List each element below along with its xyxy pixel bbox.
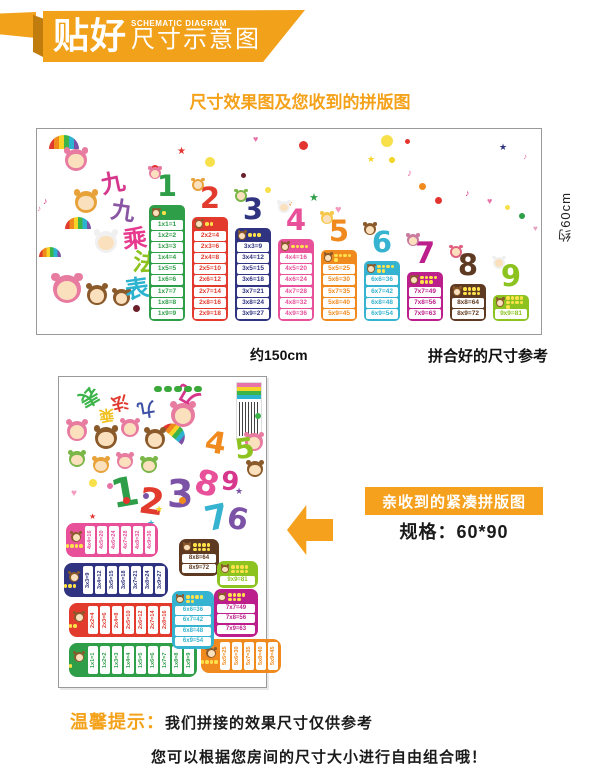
dot-icon — [202, 548, 206, 552]
multiplication-cell: 3x6=18 — [237, 275, 269, 285]
multiplication-cell: 1x5=5 — [151, 264, 183, 274]
compact-number: 5 — [233, 434, 256, 464]
note-icon: ♪ — [523, 153, 527, 161]
monkey-face-icon — [496, 298, 504, 307]
monkey-face-inner — [184, 545, 190, 550]
multiplication-cell: 7x8=56 — [217, 614, 255, 623]
multiplication-cell: 5x6=30 — [323, 275, 355, 285]
multiplication-cell: 1x4=4 — [151, 253, 183, 263]
dot-icon — [207, 548, 211, 552]
cell-text: 4x9=36 — [145, 526, 155, 554]
cell-text: 2x7=14 — [148, 606, 158, 634]
cell-text: 3x3=9 — [83, 566, 93, 594]
barcode-color-strip — [237, 383, 261, 399]
box-header — [182, 542, 216, 552]
cell-text: 3x8=24 — [143, 566, 153, 594]
column-number-row: 2 — [192, 179, 228, 217]
dot-icon — [68, 584, 72, 588]
monkey-face-inner — [222, 567, 228, 572]
dot-icon — [391, 265, 395, 269]
monkey-face-inner — [71, 574, 78, 581]
monkey-face-icon — [195, 220, 203, 229]
dot-icon — [420, 276, 424, 280]
multiplication-cell: 3x5=15 — [237, 264, 269, 274]
dot-icon — [205, 157, 215, 167]
compact-box: 6x6=366x7=426x8=486x9=54 — [172, 591, 214, 649]
cell-text: 1x5=5 — [136, 646, 146, 674]
box-header — [220, 564, 255, 574]
dots-icon — [231, 565, 252, 573]
cell-text: 1x4=4 — [124, 646, 134, 674]
multiplication-cell: 4x5=20 — [280, 264, 312, 274]
product-detail-page: 贴好 SCHEMATIC DIAGRAM 尺寸示意图 尺寸效果图及您收到的拼版图… — [0, 0, 600, 781]
multiplication-cell: 5x9=45 — [268, 642, 278, 670]
cell-text: 5x9=45 — [268, 642, 278, 670]
multiplication-cell: 3x7=21 — [131, 566, 141, 594]
multiplication-cell: 1x6=6 — [151, 275, 183, 285]
dot-icon — [343, 254, 347, 258]
column-box: 5x5=255x6=305x7=355x8=405x9=45 — [321, 250, 357, 321]
column-box-header — [194, 219, 226, 230]
multiplication-cell: 1x1=1 — [88, 646, 98, 674]
dot-icon — [339, 254, 343, 258]
brand-pill-icon — [164, 386, 172, 392]
multiplication-cell: 9x9=81 — [495, 309, 527, 319]
column-box: 2x2=42x3=62x4=82x5=102x6=122x7=142x8=162… — [192, 217, 228, 322]
monkey-face-inner — [368, 266, 374, 272]
dot-icon — [242, 593, 246, 597]
multiplication-cell: 4x4=16 — [280, 253, 312, 263]
multiplication-cell: 4x9=36 — [145, 526, 155, 554]
dot-icon — [70, 544, 74, 548]
dot-icon — [334, 254, 338, 258]
compact-box: 9x9=81 — [217, 561, 258, 588]
header-ribbon: 贴好 SCHEMATIC DIAGRAM 尺寸示意图 — [0, 4, 320, 66]
monkey-face-inner — [73, 534, 80, 541]
column-number-row: 7 — [407, 234, 443, 272]
multiplication-cell: 1x4=4 — [124, 646, 134, 674]
dot-icon — [231, 565, 235, 569]
dot-icon — [334, 258, 338, 262]
dot-icon — [237, 593, 241, 597]
monkey-face-icon — [171, 403, 195, 427]
multiplication-cell: 6x7=42 — [175, 616, 211, 625]
ribbon-banner: 贴好 SCHEMATIC DIAGRAM 尺寸示意图 — [43, 10, 305, 62]
dot-icon — [205, 660, 209, 664]
multiplication-columns: 11x1=11x2=21x3=31x4=41x5=51x6=61x7=71x8=… — [149, 167, 529, 321]
note-icon: ♪ — [43, 197, 48, 206]
multiplication-cell: 2x4=8 — [194, 253, 226, 263]
monkey-face-inner — [366, 226, 374, 234]
monkey-face-icon — [67, 421, 87, 441]
monkey-face-icon — [493, 257, 505, 269]
dot-icon — [75, 544, 79, 548]
brand-pill-icon — [194, 386, 202, 392]
multiplication-cell: 3x8=24 — [237, 298, 269, 308]
ribbon-title: 贴好 — [53, 18, 127, 54]
multiplication-cell: 3x3=9 — [237, 242, 269, 252]
monkey-face-inner — [454, 289, 460, 295]
monkey-face-inner — [282, 244, 288, 250]
monkey-face-inner — [280, 204, 288, 212]
column-box-header — [452, 286, 484, 297]
monkey-face-inner — [124, 423, 137, 435]
multiplication-cell: 2x5=10 — [124, 606, 134, 634]
multiplication-column: 11x1=11x2=21x3=31x4=41x5=51x6=61x7=71x8=… — [149, 167, 185, 321]
compact-callout-label: 亲收到的紧凑拼版图 — [365, 487, 543, 515]
multiplication-cell: 7x9=63 — [409, 309, 441, 319]
height-dimension-label: 约60cm — [556, 192, 575, 242]
dot-icon — [300, 245, 304, 249]
dot-icon — [377, 265, 381, 269]
cell-text: 3x4=12 — [95, 566, 105, 594]
monkey-face-inner — [409, 237, 417, 245]
dot-icon — [463, 292, 467, 296]
monkey-face-inner — [76, 654, 83, 661]
brand-pill-icon — [184, 386, 192, 392]
monkey-face-inner — [325, 255, 331, 261]
multiplication-cell: 3x8=24 — [143, 566, 153, 594]
dot-icon — [405, 139, 410, 144]
dot-icon — [240, 570, 244, 574]
column-box: 9x9=81 — [493, 295, 529, 321]
multiplication-cell: 6x9=54 — [366, 309, 398, 319]
dot-icon — [186, 600, 190, 604]
column-number-row: 1 — [149, 167, 185, 205]
tips-line2: 您可以根据您房间的尺寸大小进行自由组合哦！ — [151, 746, 540, 767]
multiplication-cell: 2x8=16 — [194, 298, 226, 308]
cell-text: 1x9=9 — [184, 646, 194, 674]
brand-pill-icon — [154, 386, 162, 392]
cell-text: 1x1=1 — [88, 646, 98, 674]
dots-icon — [228, 593, 249, 601]
multiplication-cell: 5x7=35 — [323, 287, 355, 297]
column-box-header — [366, 263, 398, 274]
multiplication-column: 55x5=255x6=305x7=355x8=405x9=45 — [321, 212, 357, 321]
dots-icon — [463, 287, 483, 295]
heart-icon: ♥ — [533, 225, 538, 233]
dot-icon — [381, 135, 393, 147]
multiplication-cell: 1x8=8 — [151, 298, 183, 308]
dot-icon — [463, 287, 467, 291]
monkey-face-icon — [95, 427, 117, 449]
dot-icon — [425, 276, 429, 280]
cell-text: 1x2=2 — [100, 646, 110, 674]
compact-title-char: 乘 — [98, 406, 114, 422]
column-box-header — [280, 241, 312, 252]
monkey-face-inner — [196, 221, 202, 227]
dot-icon — [198, 543, 202, 547]
monkey-face-icon — [324, 253, 332, 262]
dot-icon — [233, 593, 237, 597]
dot-icon — [201, 660, 205, 664]
cell-text: 3x7=21 — [131, 566, 141, 594]
dots-icon — [186, 595, 207, 603]
multiplication-cell: 6x8=48 — [175, 627, 211, 636]
dot-icon — [202, 543, 206, 547]
dot-icon — [143, 493, 149, 499]
monkey-face-icon — [321, 212, 333, 224]
dots-icon — [193, 543, 214, 551]
tips-block: 温馨提示： 我们拼接的效果尺寸仅供参考 您可以根据您房间的尺寸大小进行自由组合哦… — [70, 708, 540, 767]
column-box: 1x1=11x2=21x3=31x4=41x5=51x6=61x7=71x8=8… — [149, 205, 185, 321]
dot-icon — [193, 543, 197, 547]
cell-text: 2x6=12 — [136, 606, 146, 634]
dot-icon — [299, 141, 308, 150]
dots-icon — [377, 265, 397, 273]
monkey-face-icon — [71, 532, 81, 542]
cell-text: 2x5=10 — [124, 606, 134, 634]
dot-icon — [477, 287, 481, 291]
multiplication-cell: 1x9=9 — [184, 646, 194, 674]
dot-icon — [191, 595, 195, 599]
monkey-face-icon — [74, 652, 84, 662]
cell-text: 4x5=20 — [97, 526, 107, 554]
monkey-face-icon — [176, 595, 184, 603]
compact-number: 3 — [167, 475, 193, 513]
column-number-row: 9 — [493, 257, 529, 295]
note-icon: ♪ — [37, 205, 41, 213]
cell-text: 4x7=28 — [121, 526, 131, 554]
multiplication-column: 66x6=366x7=426x8=486x9=54 — [364, 223, 400, 321]
dots-icon — [291, 245, 311, 249]
column-box-header — [409, 274, 441, 285]
dot-icon — [382, 265, 386, 269]
dot-icon — [214, 660, 218, 664]
multiplication-cell: 8x9=72 — [182, 564, 216, 573]
dot-icon — [515, 296, 519, 300]
dot-icon — [515, 301, 519, 305]
dot-icon — [245, 570, 249, 574]
monkey-face-inner — [148, 433, 162, 446]
column-box: 8x8=648x9=72 — [450, 284, 486, 321]
width-dimension-label: 约150cm — [250, 345, 308, 365]
monkey-face-icon — [69, 572, 79, 582]
monkey-face-icon — [183, 543, 191, 551]
multiplication-cell: 2x9=18 — [194, 309, 226, 319]
cell-text: 1x7=7 — [160, 646, 170, 674]
dot-icon — [193, 548, 197, 552]
monkey-face-inner — [208, 650, 215, 657]
dots-icon — [69, 624, 90, 628]
dot-icon — [237, 598, 241, 602]
column-box: 7x7=497x8=567x9=63 — [407, 272, 443, 321]
dot-icon — [468, 287, 472, 291]
star-icon: ★ — [155, 505, 163, 514]
star-icon: ★ — [367, 155, 375, 164]
monkey-face-inner — [70, 425, 84, 438]
strip-header — [72, 646, 86, 674]
ribbon-tail-icon — [0, 12, 36, 38]
monkey-face-icon — [69, 451, 85, 467]
monkey-face-icon — [281, 242, 289, 251]
box-header — [175, 594, 211, 604]
dot-icon — [195, 595, 199, 599]
arrow-left-icon — [287, 505, 333, 555]
size-chart-caption: 拼合好的尺寸参考 — [428, 345, 548, 366]
brand-pill-icon — [174, 386, 182, 392]
monkey-face-icon — [74, 612, 84, 622]
monkey-face-icon — [410, 275, 418, 284]
monkey-face-inner — [175, 408, 192, 424]
cell-text: 5x8=40 — [256, 642, 266, 670]
dot-icon — [520, 301, 524, 305]
multiplication-cell: 2x2=4 — [194, 231, 226, 241]
dot-icon — [468, 292, 472, 296]
monkey-face-inner — [119, 457, 130, 468]
ribbon-subtitle-cn: 尺寸示意图 — [131, 28, 261, 52]
multiplication-cell: 2x4=8 — [112, 606, 122, 634]
dot-icon — [89, 479, 97, 487]
dot-icon — [191, 600, 195, 604]
dots-icon — [69, 664, 90, 668]
compact-box: 8x8=648x9=72 — [179, 539, 219, 576]
monkey-face-icon — [121, 419, 139, 437]
multiplication-cell: 1x8=8 — [172, 646, 182, 674]
dot-icon — [511, 296, 515, 300]
size-chart-panel: 九九乘法表 ★★★♥★♪♪♥★♪♥♪♪♥ 11x1=11x2=21x3=31x4… — [36, 128, 542, 335]
dot-icon — [107, 483, 113, 489]
monkey-face-inner — [411, 277, 417, 283]
dot-icon — [162, 211, 166, 215]
multiplication-cell: 4x7=28 — [280, 287, 312, 297]
column-box: 3x3=93x4=123x5=153x6=183x7=213x8=243x9=2… — [235, 228, 271, 321]
multiplication-cell: 3x9=27 — [237, 309, 269, 319]
dot-icon — [198, 548, 202, 552]
monkey-face-icon — [278, 201, 290, 213]
cell-text: 3x6=18 — [119, 566, 129, 594]
cell-text: 1x3=3 — [112, 646, 122, 674]
multiplication-cell: 7x7=49 — [217, 604, 255, 613]
compact-strip: 4x4=164x5=204x6=244x7=284x8=324x9=36 — [66, 523, 158, 557]
dot-icon — [429, 276, 433, 280]
column-box-header — [323, 252, 355, 263]
dot-icon — [64, 584, 68, 588]
multiplication-cell: 5x5=25 — [323, 264, 355, 274]
multiplication-cell: 7x9=63 — [217, 625, 255, 634]
tips-prefix: 温馨提示： — [70, 708, 165, 734]
monkey-face-inner — [95, 461, 106, 472]
multiplication-column: 88x8=648x9=72 — [450, 246, 486, 321]
cell-text: 2x2=4 — [88, 606, 98, 634]
dot-icon — [472, 292, 476, 296]
dot-icon — [66, 544, 70, 548]
monkey-face-icon — [152, 208, 160, 217]
box-header — [217, 592, 255, 602]
cell-text: 3x5=15 — [107, 566, 117, 594]
column-box-header — [237, 230, 269, 241]
dot-icon — [228, 593, 232, 597]
dot-icon — [296, 245, 300, 249]
star-icon: ★ — [499, 143, 507, 152]
dots-icon — [162, 211, 182, 215]
dot-icon — [210, 660, 214, 664]
dot-icon — [389, 157, 395, 163]
monkey-face-inner — [98, 432, 113, 447]
monkey-face-inner — [76, 614, 83, 621]
multiplication-cell: 6x8=48 — [366, 298, 398, 308]
dot-icon — [429, 280, 433, 284]
tips-line1: 我们拼接的效果尺寸仅供参考 — [165, 712, 373, 733]
multiplication-cell: 5x5=25 — [220, 642, 230, 670]
multiplication-cell: 4x9=36 — [280, 309, 312, 319]
dots-icon — [248, 233, 268, 237]
star-icon: ★ — [235, 487, 243, 496]
monkey-face-icon — [450, 246, 462, 258]
multiplication-cell: 5x6=30 — [232, 642, 242, 670]
cell-text: 4x4=16 — [85, 526, 95, 554]
multiplication-cell: 5x8=40 — [323, 298, 355, 308]
multiplication-cell: 1x7=7 — [160, 646, 170, 674]
compact-poster-panel: 表法乘九九123456789♥★★♥★★4x4=164x5=204x6=244x… — [58, 376, 267, 688]
dot-icon — [377, 269, 381, 273]
dot-icon — [233, 598, 237, 602]
cell-text: 2x3=6 — [100, 606, 110, 634]
dot-icon — [386, 265, 390, 269]
column-box-header — [151, 207, 183, 218]
dot-icon — [382, 269, 386, 273]
monkey-face-inner — [239, 233, 245, 239]
multiplication-cell: 2x6=12 — [194, 275, 226, 285]
compact-strip: 3x3=93x4=123x5=153x6=183x7=213x8=243x9=2… — [64, 563, 168, 597]
dot-icon — [257, 233, 261, 237]
column-number-row: 6 — [364, 223, 400, 261]
dot-icon — [240, 565, 244, 569]
monkey-face-inner — [71, 455, 82, 466]
monkey-face-inner — [249, 465, 260, 476]
star-icon: ★ — [89, 513, 96, 521]
column-number-row: 3 — [235, 190, 271, 228]
multiplication-cell: 4x6=24 — [280, 275, 312, 285]
dot-icon — [236, 565, 240, 569]
multiplication-cell: 1x3=3 — [151, 242, 183, 252]
multiplication-cell: 8x8=64 — [452, 298, 484, 308]
star-icon: ★ — [177, 147, 186, 157]
multiplication-cell: 3x5=15 — [107, 566, 117, 594]
column-number-row: 8 — [450, 246, 486, 284]
multiplication-cell: 4x5=20 — [97, 526, 107, 554]
dot-icon — [228, 598, 232, 602]
cell-text: 4x6=24 — [109, 526, 119, 554]
compact-strip: 2x2=42x3=62x4=82x5=102x6=122x7=142x8=162… — [69, 603, 185, 637]
cell-text: 2x4=8 — [112, 606, 122, 634]
multiplication-cell: 2x3=6 — [194, 242, 226, 252]
multiplication-cell: 4x8=32 — [280, 298, 312, 308]
multiplication-cell: 1x3=3 — [112, 646, 122, 674]
multiplication-cell: 4x6=24 — [109, 526, 119, 554]
cell-text: 2x8=16 — [160, 606, 170, 634]
monkey-face-inner — [194, 181, 202, 189]
multiplication-cell: 1x5=5 — [136, 646, 146, 674]
column-box: 4x4=164x5=204x6=244x7=284x8=324x9=36 — [278, 239, 314, 321]
monkey-face-inner — [143, 461, 154, 472]
multiplication-cell: 3x4=12 — [95, 566, 105, 594]
multiplication-column: 99x9=81 — [493, 257, 529, 321]
multiplication-cell: 2x8=16 — [160, 606, 170, 634]
monkey-face-inner — [237, 192, 245, 200]
multiplication-cell: 6x9=54 — [175, 637, 211, 646]
dot-icon — [434, 276, 438, 280]
multiplication-cell: 1x2=2 — [100, 646, 110, 674]
multiplication-cell: 1x2=2 — [151, 231, 183, 241]
dot-icon — [253, 233, 257, 237]
multiplication-cell: 7x8=56 — [409, 298, 441, 308]
multiplication-cell: 2x6=12 — [136, 606, 146, 634]
heart-icon: ♥ — [71, 489, 77, 499]
dot-icon — [520, 296, 524, 300]
dot-icon — [186, 595, 190, 599]
multiplication-cell: 1x9=9 — [151, 309, 183, 319]
